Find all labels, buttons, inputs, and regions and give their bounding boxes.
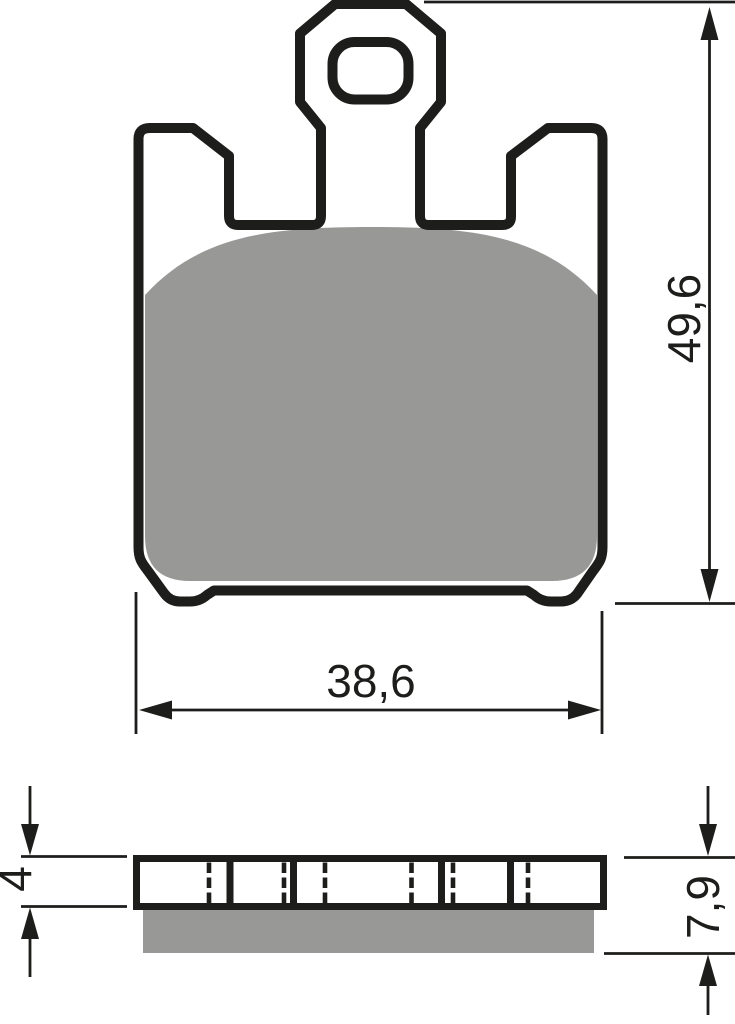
svg-text:4: 4 bbox=[0, 866, 41, 892]
svg-text:38,6: 38,6 bbox=[326, 655, 416, 707]
svg-text:7,9: 7,9 bbox=[677, 875, 729, 939]
svg-text:49,6: 49,6 bbox=[658, 274, 710, 364]
